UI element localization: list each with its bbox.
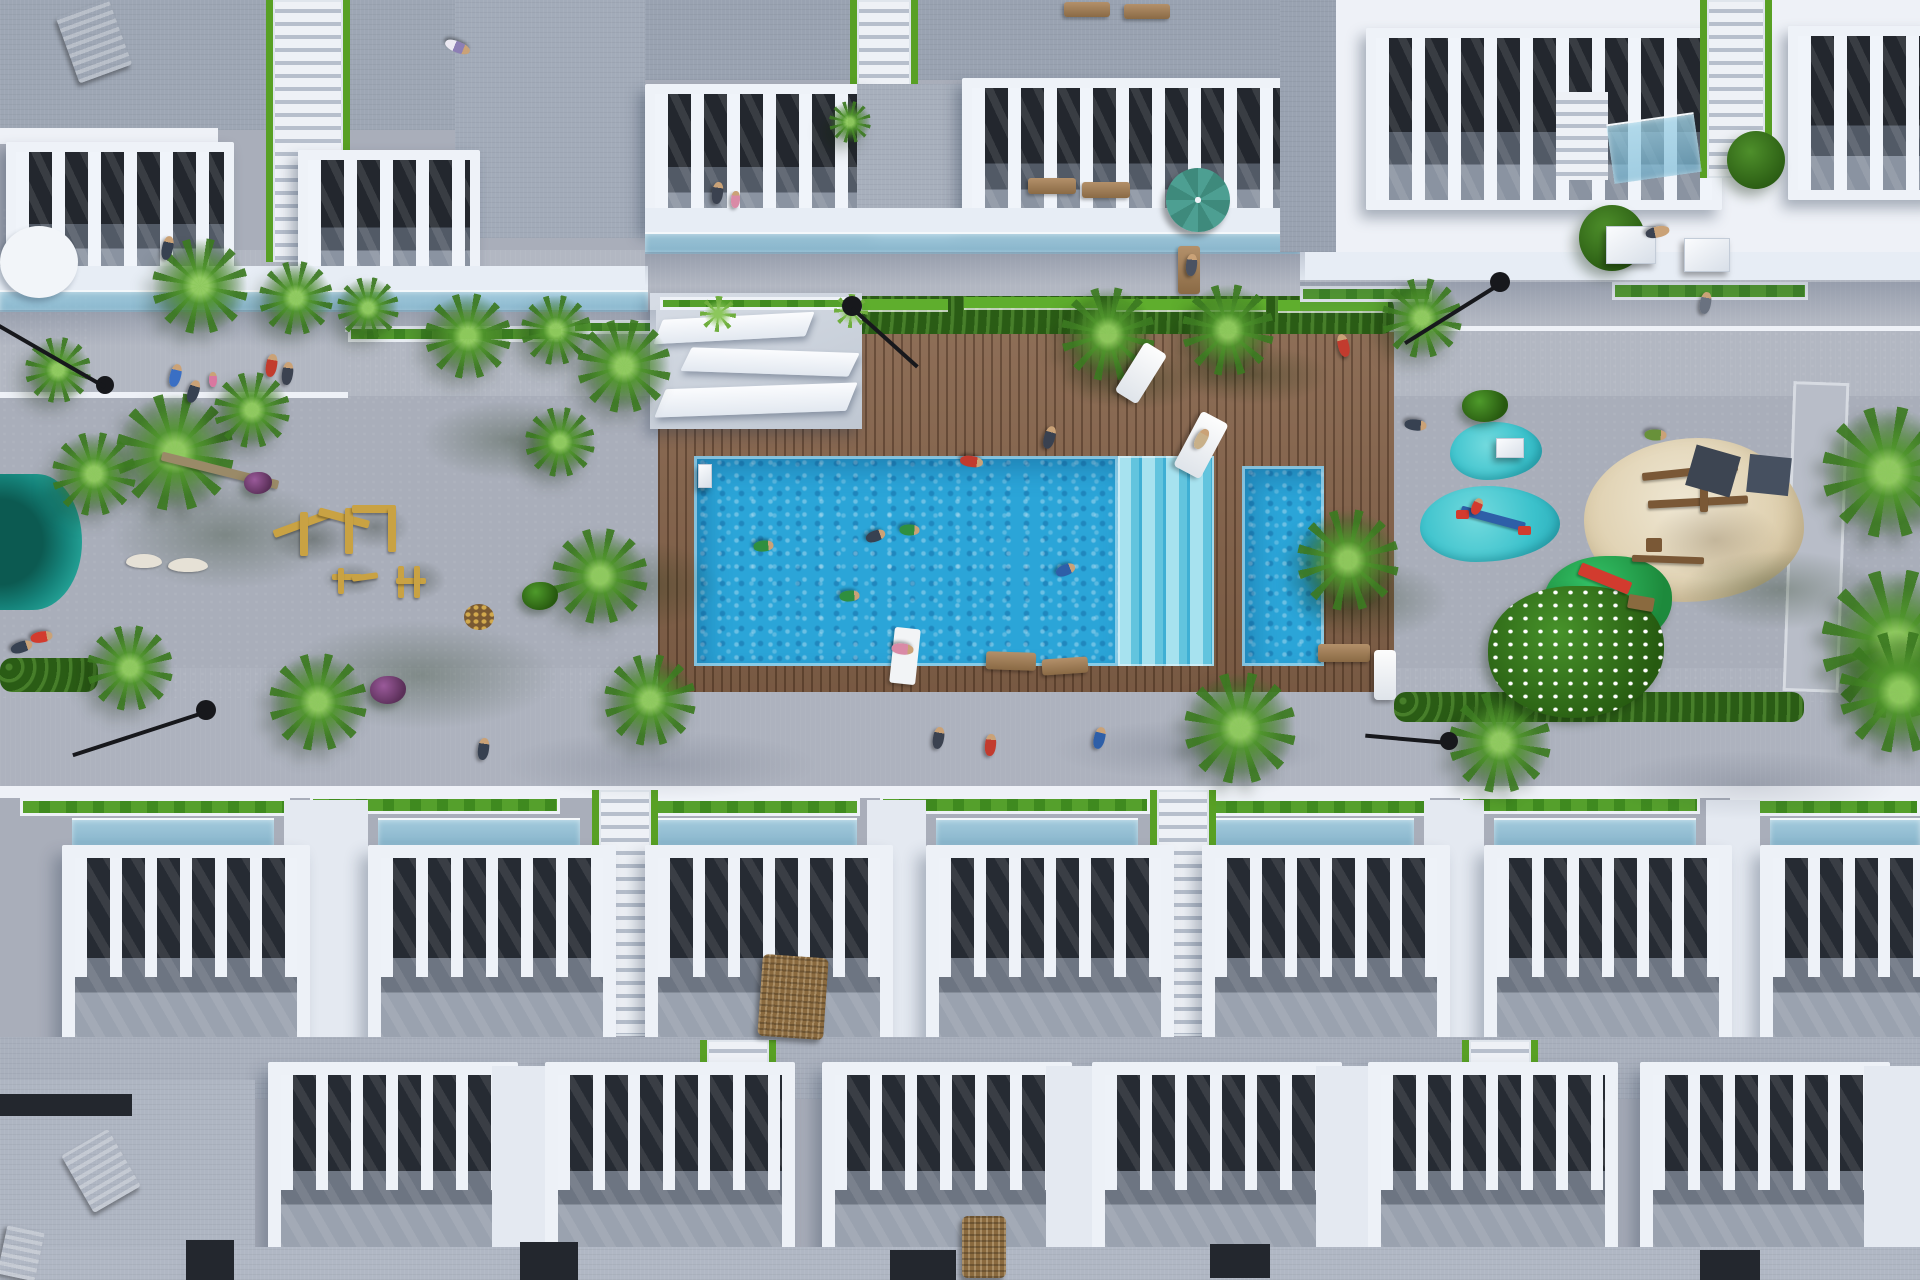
rattan-furniture bbox=[757, 954, 829, 1040]
outdoor-furniture bbox=[1684, 238, 1730, 272]
roof-terrace-pergola bbox=[1484, 845, 1732, 1063]
roof-terrace-pergola bbox=[1092, 1062, 1342, 1273]
palm-tree bbox=[337, 277, 399, 339]
palm-tree bbox=[1297, 509, 1399, 611]
outdoor-furniture bbox=[1496, 438, 1524, 458]
roof-terrace-pergola bbox=[368, 845, 616, 1063]
wooden-lounger bbox=[1041, 656, 1088, 675]
palm-tree bbox=[1184, 672, 1296, 784]
playground-beam bbox=[300, 512, 308, 556]
playground-beam bbox=[388, 508, 396, 552]
street-lamp bbox=[96, 376, 114, 394]
street-lamp bbox=[196, 700, 216, 720]
play-toy bbox=[1518, 526, 1531, 535]
building-wall bbox=[1394, 326, 1920, 331]
palm-tree bbox=[269, 653, 367, 751]
roof-terrace-pergola bbox=[1368, 1062, 1618, 1273]
glass-balustrade bbox=[1770, 818, 1920, 848]
palm-tree bbox=[1182, 284, 1274, 376]
person bbox=[899, 524, 919, 536]
palm-tree bbox=[829, 101, 871, 143]
wooden-lounger bbox=[1318, 644, 1370, 662]
palm-tree bbox=[52, 432, 136, 516]
person bbox=[209, 372, 217, 387]
balcony-balustrade bbox=[962, 78, 1312, 228]
roof-terrace bbox=[645, 0, 1300, 80]
shadow bbox=[1650, 500, 1780, 580]
balcony-balustrade bbox=[1788, 26, 1920, 200]
glass-balustrade bbox=[645, 232, 1300, 254]
pool-steps bbox=[1118, 456, 1214, 666]
palm-tree bbox=[577, 319, 671, 413]
street-lamp bbox=[1440, 732, 1458, 750]
roof-terrace bbox=[455, 0, 645, 238]
playground-beam bbox=[338, 568, 344, 594]
log-pile bbox=[464, 604, 494, 630]
sun-lounger bbox=[1374, 650, 1396, 700]
person bbox=[1644, 429, 1666, 441]
planter bbox=[1180, 798, 1430, 816]
palm-tree bbox=[425, 293, 511, 379]
parasol bbox=[1166, 168, 1230, 232]
roof-terrace bbox=[0, 1247, 1920, 1280]
roof-terrace-pergola bbox=[822, 1062, 1072, 1273]
stairs bbox=[1556, 92, 1608, 180]
roof-terrace bbox=[857, 84, 963, 210]
roof-vent bbox=[1210, 1244, 1270, 1278]
glass-balustrade bbox=[72, 818, 274, 848]
glass-balustrade bbox=[1212, 818, 1414, 848]
roof-terrace-pergola bbox=[1640, 1062, 1890, 1273]
hedge bbox=[0, 658, 98, 692]
roof-terrace-pergola bbox=[268, 1062, 518, 1273]
aerial-render-scene bbox=[0, 0, 1920, 1280]
glass-balustrade bbox=[378, 818, 580, 848]
play-toy bbox=[1646, 538, 1662, 552]
street-lamp bbox=[842, 296, 862, 316]
palm-tree bbox=[87, 625, 173, 711]
palm-tree bbox=[552, 528, 648, 624]
glass-balustrade bbox=[936, 818, 1138, 848]
animal bbox=[126, 554, 162, 568]
glass-balustrade bbox=[1606, 112, 1701, 184]
outdoor-furniture bbox=[698, 464, 712, 488]
wooden-lounger bbox=[1064, 2, 1110, 17]
palm-tree bbox=[214, 372, 290, 448]
building-wall bbox=[1746, 454, 1792, 496]
playground-beam bbox=[414, 566, 420, 598]
rattan-furniture bbox=[962, 1216, 1006, 1278]
agave-plant bbox=[700, 296, 736, 332]
palm-tree bbox=[1382, 278, 1462, 358]
glass-balustrade bbox=[655, 818, 857, 848]
street-lamp bbox=[1490, 272, 1510, 292]
white-canopy bbox=[0, 226, 78, 298]
planter bbox=[660, 297, 854, 310]
roof-terrace-pergola bbox=[1202, 845, 1450, 1063]
roof-terrace-pergola bbox=[926, 845, 1174, 1063]
wooden-lounger bbox=[1124, 4, 1170, 19]
shadow bbox=[1600, 750, 1900, 820]
animal bbox=[168, 558, 208, 572]
roof-terrace-pergola bbox=[1760, 845, 1920, 1063]
playground-beam bbox=[396, 578, 426, 584]
palm-tree bbox=[525, 407, 595, 477]
glass-balustrade bbox=[1494, 818, 1696, 848]
roof-terrace-pergola bbox=[62, 845, 310, 1063]
planter bbox=[20, 798, 290, 816]
palm-tree bbox=[604, 654, 696, 746]
roof-vent bbox=[520, 1242, 578, 1280]
roof-vent bbox=[1700, 1250, 1760, 1280]
play-toy bbox=[1456, 510, 1469, 519]
roof-vent bbox=[0, 1094, 132, 1116]
roof-terrace bbox=[1280, 0, 1336, 252]
palm-tree bbox=[259, 261, 333, 335]
wooden-lounger bbox=[1028, 178, 1076, 194]
tree bbox=[1727, 131, 1785, 189]
roof-vent bbox=[186, 1240, 234, 1280]
wooden-lounger bbox=[986, 651, 1037, 671]
playground-beam bbox=[345, 508, 353, 554]
wooden-lounger bbox=[1082, 182, 1130, 198]
building-shadow bbox=[645, 252, 1305, 286]
roof-terrace-pergola bbox=[545, 1062, 795, 1273]
roof-vent bbox=[890, 1250, 956, 1280]
